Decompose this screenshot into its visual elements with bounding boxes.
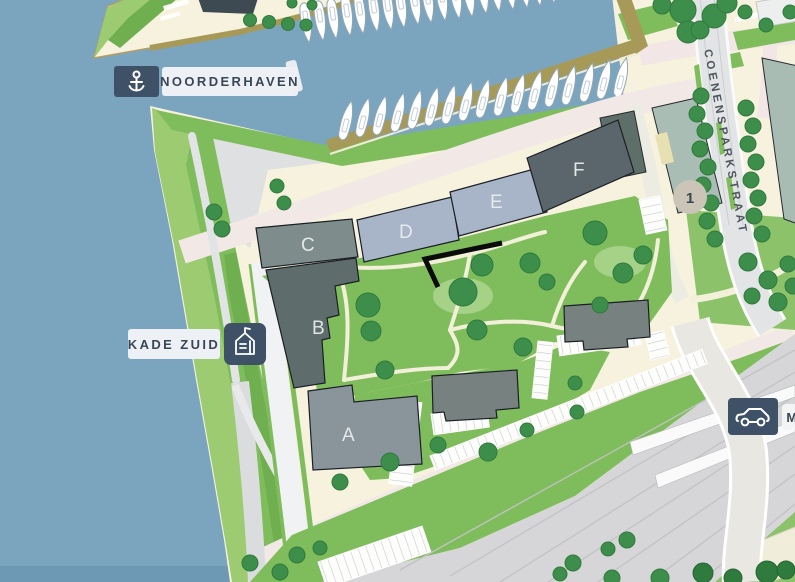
badge-noorderhaven[interactable]: NOORDERHAVEN xyxy=(114,66,300,97)
marker-1[interactable]: 1 xyxy=(673,180,707,214)
building-a-label: A xyxy=(342,425,355,446)
building-d-label: D xyxy=(399,222,413,243)
water-quay-shadow xyxy=(0,566,243,582)
kade-zuid-label: KADE ZUID xyxy=(128,337,220,352)
building-b-label: B xyxy=(312,318,325,339)
building-f-label: F xyxy=(573,160,585,181)
site-map-page: C D E F B A xyxy=(0,0,795,582)
building-quay-dark xyxy=(198,0,258,14)
parking-label: M xyxy=(786,410,795,425)
site-map: C D E F B A xyxy=(0,0,795,582)
badge-kade-zuid[interactable]: KADE ZUID xyxy=(128,323,266,365)
noorderhaven-label: NOORDERHAVEN xyxy=(160,74,300,89)
marker-1-label: 1 xyxy=(686,190,694,207)
building-c-label: C xyxy=(301,235,315,256)
building-e-label: E xyxy=(490,192,503,213)
